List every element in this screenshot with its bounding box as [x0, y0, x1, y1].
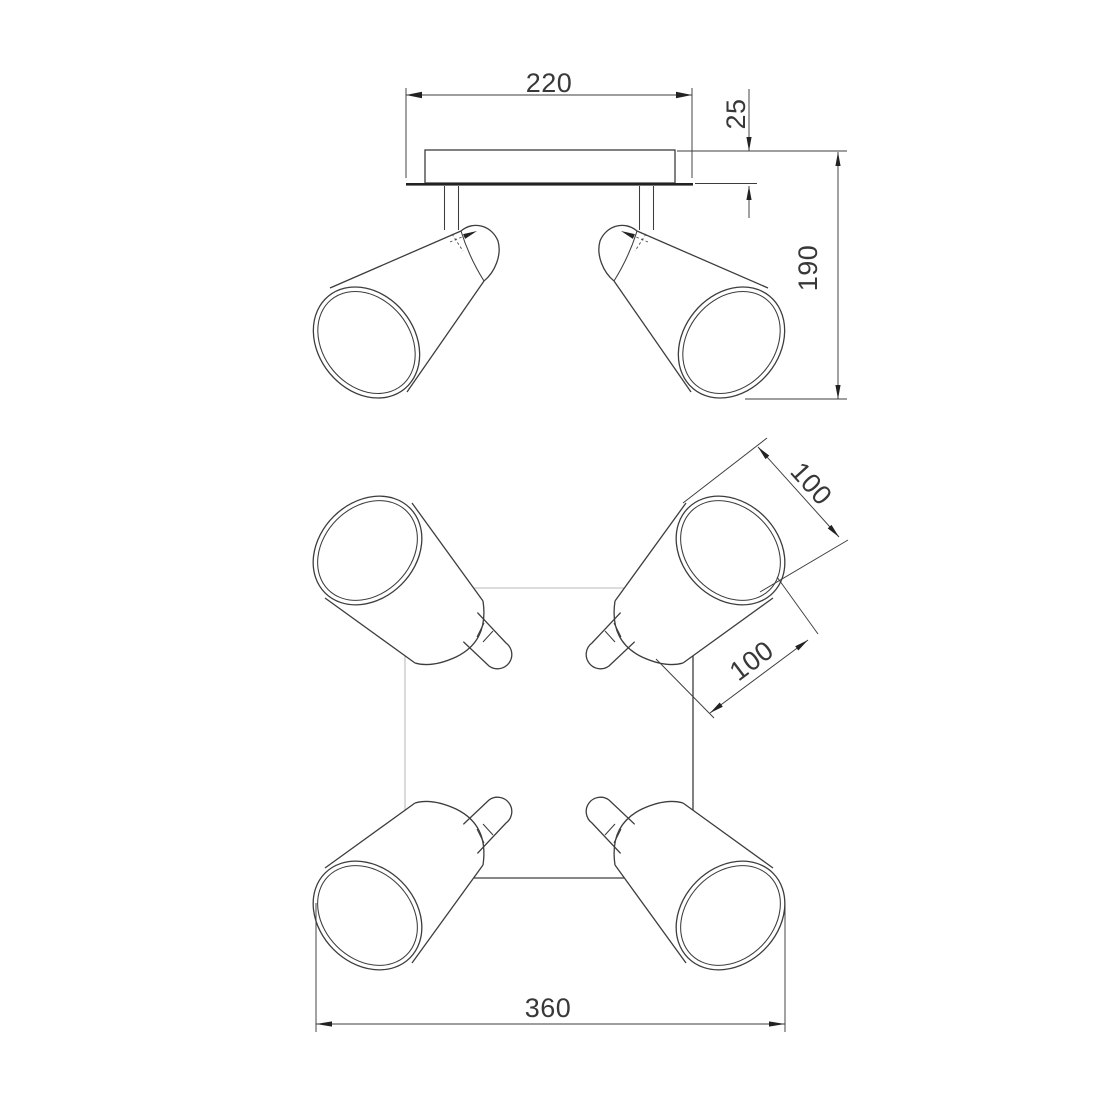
spot-lamp-front-left	[291, 225, 499, 419]
ceiling-canopy	[425, 150, 675, 183]
dim-arrowhead-icon	[406, 92, 422, 98]
canopy-base-flange	[406, 183, 693, 186]
dim-arrowhead-icon	[676, 92, 692, 98]
dim-arrowhead-icon	[316, 1021, 332, 1026]
lamp-stem-left	[445, 186, 459, 230]
spot-lamp-plan-top-right	[586, 474, 807, 669]
dim-arrowhead-icon	[835, 152, 840, 166]
spot-lamp-plan-bottom-left	[291, 797, 512, 992]
front-elevation-view	[291, 150, 806, 419]
dim-arrowhead-icon	[746, 186, 751, 200]
dim-label-shade-diameter: 100	[785, 456, 838, 511]
dim-arrowhead-icon	[769, 1021, 785, 1026]
extension-line	[777, 577, 818, 634]
dim-arrowhead-icon	[835, 385, 840, 399]
dimension-canopy-height: 25	[677, 89, 847, 218]
technical-drawing-page: 220 25 190 100	[0, 0, 1100, 1100]
dim-arrowhead-icon	[795, 640, 808, 651]
spot-lamp-front-right	[599, 225, 807, 419]
dim-label-fixture-height: 190	[793, 245, 823, 292]
extension-line	[656, 659, 714, 718]
dim-label-canopy-height: 25	[721, 98, 751, 129]
dimension-canopy-width: 220	[406, 68, 692, 178]
dim-label-canopy-width: 220	[526, 68, 573, 98]
dim-arrowhead-icon	[710, 703, 723, 714]
spot-lamp-plan-bottom-right	[586, 797, 807, 992]
lamp-stem-right	[640, 186, 654, 230]
plan-view	[291, 474, 807, 992]
dim-label-overall-width: 360	[525, 993, 572, 1023]
dim-label-shade-length: 100	[724, 635, 779, 687]
technical-drawing: 220 25 190 100	[0, 0, 1100, 1100]
extension-line	[683, 438, 767, 503]
dim-arrowhead-icon	[746, 137, 751, 151]
spot-lamp-plan-top-left	[291, 474, 512, 669]
